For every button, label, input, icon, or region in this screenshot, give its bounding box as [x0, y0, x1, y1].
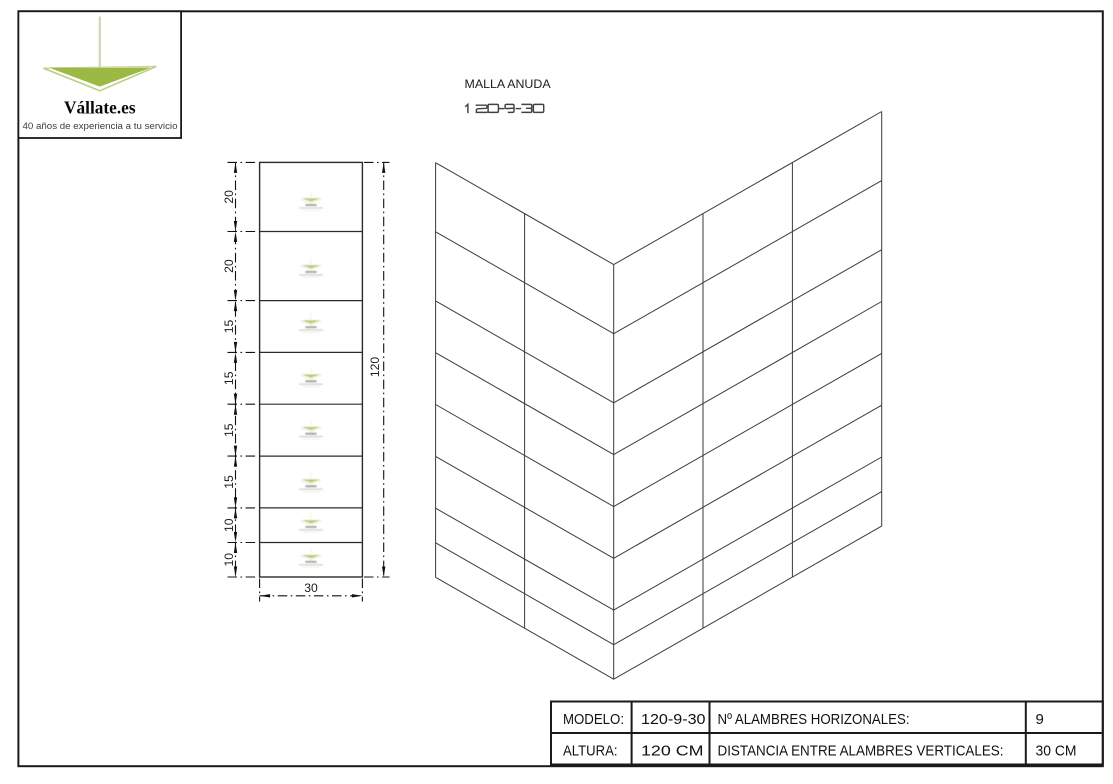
svg-text:10: 10 — [222, 518, 236, 532]
svg-text:40 años de experiencia a tu se: 40 años de experiencia a tu servicio — [23, 121, 178, 132]
svg-text:MALLA ANUDA: MALLA ANUDA — [465, 77, 552, 91]
svg-text:120-9-30: 120-9-30 — [641, 711, 706, 728]
svg-text:20: 20 — [222, 190, 236, 204]
svg-text:MODELO:: MODELO: — [563, 711, 624, 728]
svg-text:DISTANCIA ENTRE ALAMBRES VERTI: DISTANCIA ENTRE ALAMBRES VERTICALES: — [718, 742, 1004, 759]
svg-text:20: 20 — [222, 259, 236, 273]
svg-text:30: 30 — [304, 581, 318, 595]
svg-text:15: 15 — [222, 475, 236, 489]
svg-text:ALTURA:: ALTURA: — [563, 742, 618, 759]
svg-text:Vállate.es: Vállate.es — [64, 98, 136, 118]
svg-text:15: 15 — [222, 320, 236, 334]
svg-text:10: 10 — [222, 553, 236, 567]
svg-text:9: 9 — [1036, 711, 1044, 728]
svg-text:120: 120 — [368, 357, 382, 378]
svg-text:15: 15 — [222, 371, 236, 385]
svg-text:30 CM: 30 CM — [1036, 742, 1077, 759]
svg-text:Nº ALAMBRES HORIZONALES:: Nº ALAMBRES HORIZONALES: — [718, 711, 910, 728]
svg-text:120 CM: 120 CM — [641, 742, 704, 759]
svg-text:15: 15 — [222, 423, 236, 437]
